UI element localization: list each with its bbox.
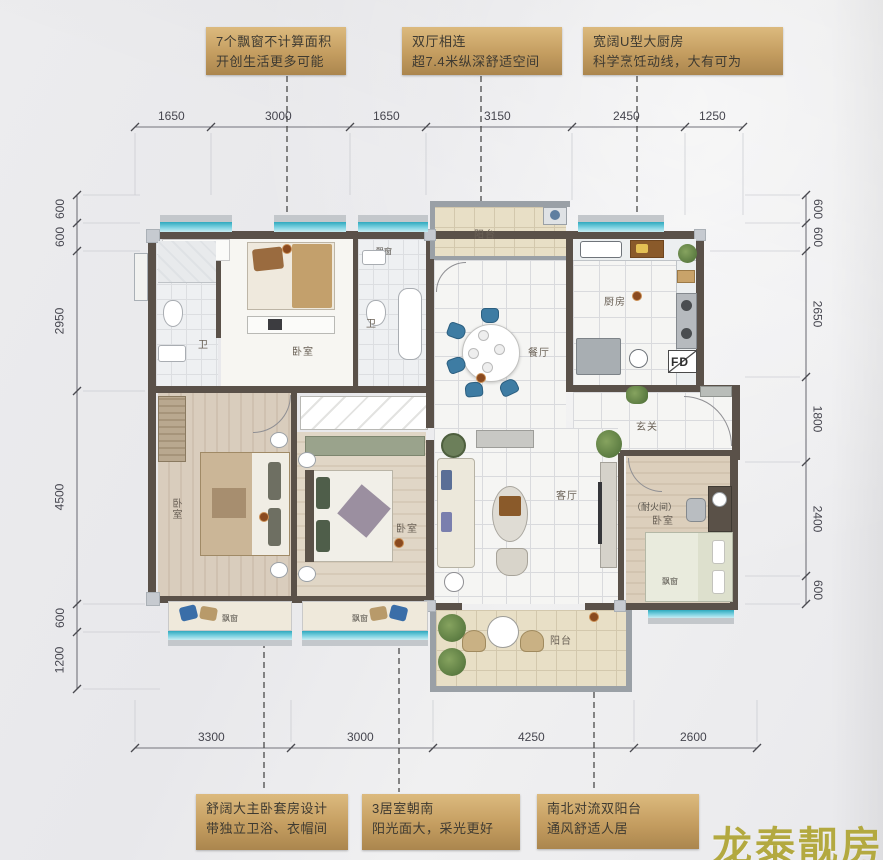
dining-chair	[481, 308, 499, 323]
note-double-balcony: 南北对流双阳台 通风舒适人居	[537, 794, 699, 849]
note-kitchen: 宽阔U型大厨房 科学烹饪动线，大有可为	[583, 27, 783, 75]
wall-kitchen-west	[566, 238, 573, 392]
laptop	[268, 319, 282, 330]
bedroom4-bay-glass	[648, 610, 734, 618]
column	[614, 600, 626, 612]
leader-dot	[259, 512, 269, 522]
pillow	[268, 462, 281, 500]
dim-right-4: 1800	[810, 406, 824, 433]
pillow	[712, 540, 725, 564]
tv-cabinet	[600, 462, 617, 568]
dim-left-3: 2950	[52, 308, 66, 335]
balcony-chair	[520, 630, 544, 652]
dim-top-5: 2450	[613, 109, 640, 123]
kitchen-label: 厨房	[604, 293, 626, 308]
dim-left-2: 600	[53, 227, 67, 247]
dim-right-2: 600	[811, 227, 825, 247]
note-line: 双厅相连	[412, 32, 552, 52]
dim-top-6: 1250	[699, 109, 726, 123]
hall-bench	[700, 386, 732, 397]
wall-dining-west	[426, 238, 434, 428]
nightstand	[298, 452, 316, 468]
wall-living-bed4	[618, 453, 624, 610]
toilet	[163, 300, 183, 327]
balcony-plant	[438, 648, 466, 676]
wall-living-west	[426, 440, 434, 610]
plate	[468, 348, 479, 359]
headboard	[305, 470, 314, 562]
bay-window-label: 飘窗	[352, 613, 368, 624]
pass-window-items	[636, 244, 648, 253]
bay-window-frame	[358, 215, 428, 222]
note-line: 带独立卫浴、衣帽间	[206, 819, 338, 839]
pillow	[199, 606, 218, 622]
wall-left	[148, 231, 156, 603]
note-line: 科学烹饪动线，大有可为	[593, 52, 773, 72]
stove-burner	[681, 300, 692, 311]
dim-bottom-3: 4250	[518, 730, 545, 744]
dim-top-2: 3000	[265, 109, 292, 123]
master-bedroom-label: 卧室	[168, 498, 183, 520]
leader-dot	[589, 612, 599, 622]
nightstand	[270, 562, 288, 578]
dim-left-6: 1200	[52, 647, 66, 674]
sofa-pillow	[441, 470, 452, 490]
plate	[482, 362, 493, 373]
balcony-top-label: 阳台	[474, 226, 496, 241]
balcony-table	[487, 616, 519, 648]
wall-bed2-bath2	[353, 238, 358, 386]
dim-left-1: 600	[53, 199, 67, 219]
dim-top-1: 1650	[158, 109, 185, 123]
wall-hall-bed4	[620, 450, 738, 456]
dim-bottom-2: 3000	[347, 730, 374, 744]
dim-bottom-1: 3300	[198, 730, 225, 744]
bedroom3-bay-frame	[302, 640, 428, 646]
side-table	[444, 572, 464, 592]
living-plant	[596, 430, 622, 458]
note-line: 开创生活更多可能	[216, 52, 336, 72]
washing-machine-door	[550, 210, 560, 220]
nightstand	[270, 432, 288, 448]
console-table	[476, 430, 534, 448]
note-line: 宽阔U型大厨房	[593, 32, 773, 52]
stove-burner	[681, 328, 692, 339]
bedroom3-label: 卧室	[396, 520, 418, 535]
bay-window-frame	[274, 215, 346, 222]
desk-chair	[686, 498, 706, 522]
leader-dot	[632, 291, 642, 301]
railing-balcony-bottom-right	[626, 610, 632, 692]
wardrobe	[158, 396, 186, 462]
dim-left-5: 600	[53, 608, 67, 628]
bathroom2-label: 卫	[366, 315, 377, 330]
master-bay-frame	[168, 640, 292, 646]
balcony-chair	[462, 630, 486, 652]
armchair	[496, 548, 528, 576]
sink	[158, 345, 186, 362]
plate	[494, 344, 505, 355]
bedroom4-bay-frame	[648, 618, 734, 624]
rice-cooker	[629, 349, 648, 368]
bathtub	[398, 288, 422, 360]
note-line: 超7.4米纵深舒适空间	[412, 52, 552, 72]
throw-blanket	[212, 488, 246, 518]
note-south-rooms: 3居室朝南 阳光面大，采光更好	[362, 794, 520, 850]
kitchen-sink	[580, 241, 622, 258]
ac-ledge	[134, 253, 148, 301]
wall-kitchen-east	[696, 231, 704, 392]
bay-window-frame	[160, 215, 232, 222]
pillow	[268, 508, 281, 546]
nightstand	[298, 566, 316, 582]
desk-lamp	[712, 492, 727, 507]
leader-dot	[282, 244, 292, 254]
flue-label: FD	[671, 355, 689, 369]
bedroom3-bay-glass	[302, 631, 428, 640]
bay-window-label: 飘窗	[662, 576, 678, 587]
coffee-table-tray	[499, 496, 521, 516]
note-line: 3居室朝南	[372, 799, 510, 819]
dining-label: 餐厅	[528, 344, 550, 359]
note-bay-windows: 7个飘窗不计算面积 开创生活更多可能	[206, 27, 346, 75]
refrigerator	[576, 338, 621, 375]
pouf	[441, 433, 466, 458]
bay-window-glass	[358, 222, 428, 232]
sink	[362, 250, 386, 265]
bay-window-glass	[274, 222, 346, 232]
bay-window-glass	[160, 222, 232, 232]
blanket	[292, 244, 332, 308]
note-master-suite: 舒阔大主卧套房设计 带独立卫浴、衣帽间	[196, 794, 348, 850]
dim-right-3: 2650	[810, 301, 824, 328]
railing-balcony-bottom	[430, 686, 632, 692]
pillow	[252, 246, 284, 271]
dim-top-4: 3150	[484, 109, 511, 123]
dim-top-3: 1650	[373, 109, 400, 123]
sofa-pillow	[441, 512, 452, 532]
dim-left-4: 4500	[52, 484, 66, 511]
note-line: 南北对流双阳台	[547, 799, 689, 819]
note-line: 舒阔大主卧套房设计	[206, 799, 338, 819]
kitchen-plant	[678, 244, 697, 263]
leader-dot	[394, 538, 404, 548]
master-bay-glass	[168, 631, 292, 640]
plate	[478, 330, 489, 341]
dim-bottom-4: 2600	[680, 730, 707, 744]
corridor-cabinet	[300, 396, 428, 430]
bathroom1-label: 卫	[198, 336, 209, 351]
cutting-board	[677, 270, 695, 283]
divider-balcony-dining	[434, 256, 566, 260]
leader-dot	[476, 373, 486, 383]
wall-master-bed3	[291, 392, 297, 602]
watermark-logo: 龙泰靓房	[712, 814, 883, 860]
note-line: 阳光面大，采光更好	[372, 819, 510, 839]
railing-balcony-bottom-left	[430, 610, 436, 692]
kitchen-window-frame	[578, 215, 664, 222]
living-label: 客厅	[556, 487, 578, 502]
dining-chair	[464, 381, 483, 398]
kitchen-window-glass	[578, 222, 664, 232]
wall-hall-east	[732, 385, 740, 460]
bedroom2-label: 卧室	[292, 343, 314, 358]
note-line: 通风舒适人居	[547, 819, 689, 839]
floorplan-page: { "annotations": { "top": [ {"line1":"7个…	[0, 0, 883, 860]
pillow	[712, 570, 725, 594]
wall-living-south-1	[432, 603, 462, 610]
dim-right-6: 600	[811, 580, 825, 600]
note-double-hall: 双厅相连 超7.4米纵深舒适空间	[402, 27, 562, 75]
note-line: 7个飘窗不计算面积	[216, 32, 336, 52]
desk	[305, 436, 425, 456]
dim-right-5: 2400	[810, 506, 824, 533]
wall-bed4-south	[620, 603, 738, 610]
tv	[598, 482, 602, 544]
hall-plant	[626, 386, 648, 404]
shower-area	[158, 241, 216, 283]
dim-right-1: 600	[811, 199, 825, 219]
hall-label: 玄关	[636, 418, 658, 433]
pillow	[316, 477, 330, 509]
desk	[247, 316, 335, 334]
bay-window-label: 飘窗	[222, 613, 238, 624]
bedroom4-label: 卧室	[652, 512, 674, 527]
balcony-bottom-label: 阳台	[550, 632, 572, 647]
column	[146, 592, 160, 606]
pillow	[316, 520, 330, 552]
